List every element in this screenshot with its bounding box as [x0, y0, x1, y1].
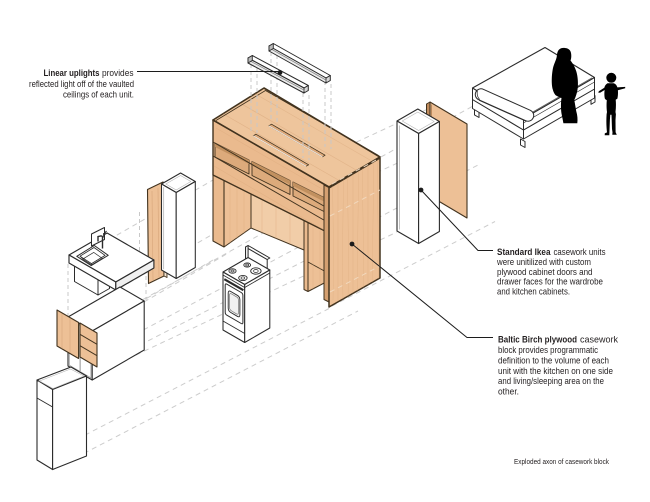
- svg-text:Linear uplights: Linear uplights: [44, 68, 100, 78]
- svg-text:casework: casework: [580, 335, 618, 345]
- svg-text:reflected light off of the vau: reflected light off of the vaulted: [29, 79, 134, 89]
- svg-text:Standard Ikea: Standard Ikea: [497, 247, 551, 257]
- svg-text:block provides programmatic: block provides programmatic: [498, 345, 598, 355]
- svg-text:drawer faces for the wardrobe: drawer faces for the wardrobe: [497, 277, 603, 287]
- svg-text:ceilings of each unit.: ceilings of each unit.: [63, 89, 134, 99]
- svg-text:were unitilized with custom: were unitilized with custom: [496, 257, 591, 267]
- svg-text:and kitchen cabinets.: and kitchen cabinets.: [497, 286, 570, 296]
- svg-text:casework units: casework units: [554, 247, 606, 257]
- svg-text:Baltic Birch plywood: Baltic Birch plywood: [498, 335, 577, 345]
- svg-text:Exploded axon of casework bloc: Exploded axon of casework block: [514, 459, 609, 466]
- svg-text:provides: provides: [102, 68, 134, 78]
- svg-text:unit with the kitchen on one s: unit with the kitchen on one side: [498, 366, 613, 376]
- svg-text:other.: other.: [498, 387, 519, 397]
- svg-text:definition to the volume of ea: definition to the volume of each: [498, 356, 609, 366]
- svg-text:and living/sleeping area on th: and living/sleeping area on the: [498, 376, 604, 386]
